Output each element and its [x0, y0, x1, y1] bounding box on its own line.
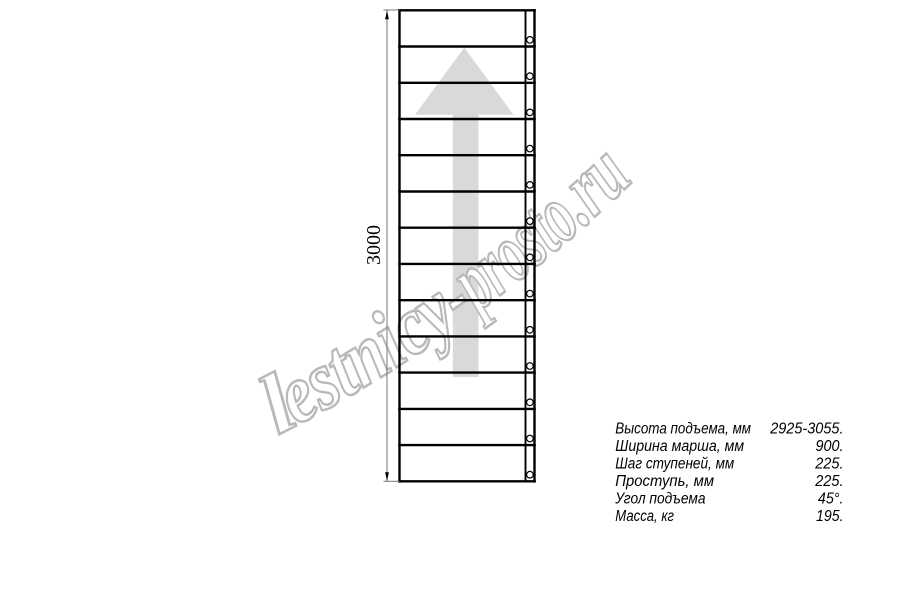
- svg-text:195.: 195.: [816, 508, 844, 525]
- svg-text:Проступь, мм: Проступь, мм: [615, 473, 714, 490]
- svg-text:Ширина марша, мм: Ширина марша, мм: [615, 438, 744, 455]
- svg-text:Масса, кг: Масса, кг: [615, 508, 674, 525]
- svg-text:45°.: 45°.: [818, 490, 844, 507]
- svg-text:Шаг ступеней, мм: Шаг ступеней, мм: [615, 455, 734, 472]
- svg-text:225.: 225.: [814, 473, 843, 490]
- svg-text:2925-3055.: 2925-3055.: [769, 420, 843, 437]
- svg-text:3000: 3000: [363, 225, 385, 265]
- svg-text:Угол подъема: Угол подъема: [614, 490, 705, 507]
- svg-text:900.: 900.: [816, 438, 844, 455]
- svg-text:225.: 225.: [814, 455, 843, 472]
- svg-text:Высота подъема, мм: Высота подъема, мм: [615, 420, 751, 437]
